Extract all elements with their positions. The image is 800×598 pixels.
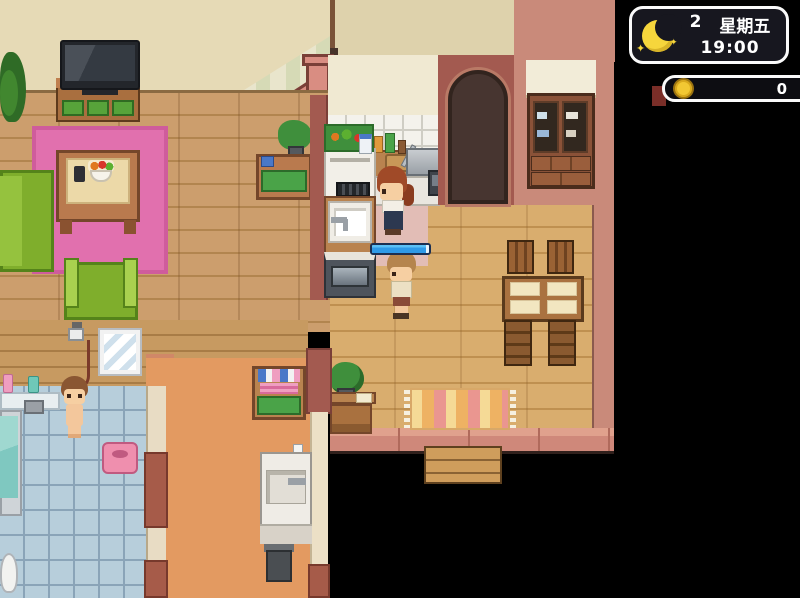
placemat — [510, 300, 540, 314]
stove-window — [331, 266, 369, 287]
wash-basin — [0, 553, 18, 593]
sparkle-icon: ✦ — [636, 43, 645, 54]
white-unit-handle — [330, 158, 370, 162]
tv-base — [82, 90, 118, 95]
tv-stand-drawer — [62, 100, 84, 116]
console-doors — [261, 170, 307, 192]
bath-mirror — [100, 330, 140, 374]
progress-cap — [426, 245, 429, 253]
cabinet-dish — [566, 112, 578, 119]
child-feet — [68, 434, 81, 438]
money-amount: 0 — [694, 80, 800, 98]
tv-stand-drawer — [87, 100, 109, 116]
armchair-armrest — [123, 258, 138, 308]
npc-shower-child[interactable] — [58, 374, 90, 440]
kitchen-upper-wall — [328, 55, 440, 117]
child-eye — [78, 394, 82, 398]
clock-time: 19:00 — [684, 38, 776, 58]
divider-brick — [144, 452, 168, 528]
cabinet-dish — [537, 112, 547, 119]
tub-drain-box — [24, 400, 44, 414]
steps-down[interactable] — [424, 446, 502, 484]
moon-bite — [655, 14, 682, 41]
placemat — [547, 282, 577, 296]
npc-mother[interactable] — [374, 166, 416, 236]
boy-shoes — [393, 313, 409, 319]
hall-wall-block — [306, 348, 332, 414]
kitchen-top-wall — [330, 0, 516, 60]
vanity-faucet — [288, 478, 306, 485]
child-body — [66, 404, 83, 426]
hud-time-panel: ✦ ✦ 2 星期五 19:00 — [629, 6, 789, 64]
arch-doorway[interactable] — [448, 70, 508, 204]
cabinet-dish — [537, 130, 549, 137]
day-number: 2 — [690, 12, 702, 37]
grill-rack — [336, 182, 370, 197]
stool-handle-hole — [112, 450, 128, 458]
hall-side-table-legs — [330, 404, 372, 434]
cabinet-dish — [566, 130, 576, 137]
child-eye — [67, 394, 71, 398]
folded-towel — [260, 383, 298, 394]
table-leg — [60, 220, 72, 234]
table-leg — [124, 220, 136, 234]
hud-money-panel: 0 — [662, 75, 800, 102]
spice-jar — [385, 133, 395, 153]
console-book — [261, 156, 274, 167]
cabinet-glass-door — [562, 101, 588, 153]
action-progress-bar — [370, 243, 431, 255]
dining-chair — [548, 320, 576, 366]
tv-stand-drawer — [112, 100, 134, 116]
gold-coin-icon — [673, 78, 694, 99]
divider-brick — [144, 560, 168, 598]
rug-fringe — [510, 390, 516, 428]
crescent-moon-icon: ✦ ✦ — [640, 13, 680, 57]
boy-shirt — [391, 281, 412, 298]
placemat — [547, 300, 577, 314]
rug-fringe — [404, 390, 410, 428]
dining-chair — [504, 320, 532, 366]
shampoo-bottle-pink — [3, 374, 13, 393]
spice-jar — [398, 140, 406, 154]
cabinet-drawers — [531, 172, 591, 186]
boy-shorts — [393, 297, 410, 306]
dining-chair — [547, 240, 574, 274]
bathtub-water — [0, 416, 18, 498]
pink-step-stool — [102, 442, 138, 474]
placemat — [510, 282, 540, 296]
game-viewport[interactable]: ✦ ✦ 2 星期五 19:00 0 — [0, 0, 800, 598]
top-right-wall — [514, 0, 615, 62]
vanity-basin — [266, 470, 306, 504]
progress-fill — [372, 245, 429, 253]
milk-carton — [359, 134, 372, 154]
shampoo-bottle-teal — [28, 376, 39, 393]
houseplant-corner-leaf — [0, 70, 18, 116]
dining-chair — [507, 240, 534, 274]
mother-pants — [384, 211, 403, 230]
hallway-back-wall — [148, 320, 308, 358]
sink-faucet-spout — [343, 219, 348, 231]
trash-bin — [266, 550, 292, 582]
sparkle-icon: ✦ — [670, 39, 678, 48]
mother-eye — [382, 189, 386, 194]
npc-boy[interactable] — [384, 250, 420, 320]
tv-screen — [65, 45, 135, 81]
striped-rug — [410, 388, 510, 430]
boy-eye — [392, 272, 396, 276]
hall-pillar — [310, 412, 328, 566]
cabinet-glass-door — [533, 101, 559, 153]
green-sofa-back — [0, 176, 22, 266]
mother-shoes — [385, 229, 401, 235]
towel-cabinet-doors — [257, 396, 301, 415]
cabinet-drawers — [531, 156, 591, 171]
weekday-label: 星期五 — [719, 12, 770, 37]
vanity-kick — [260, 524, 312, 544]
armchair-armrest — [64, 258, 79, 308]
letter-on-table — [356, 393, 372, 403]
time-text-block: 2 星期五 19:00 — [684, 12, 776, 58]
hall-pillar-base — [308, 564, 330, 598]
towel-roll — [258, 369, 300, 382]
tv-remote — [74, 166, 85, 182]
